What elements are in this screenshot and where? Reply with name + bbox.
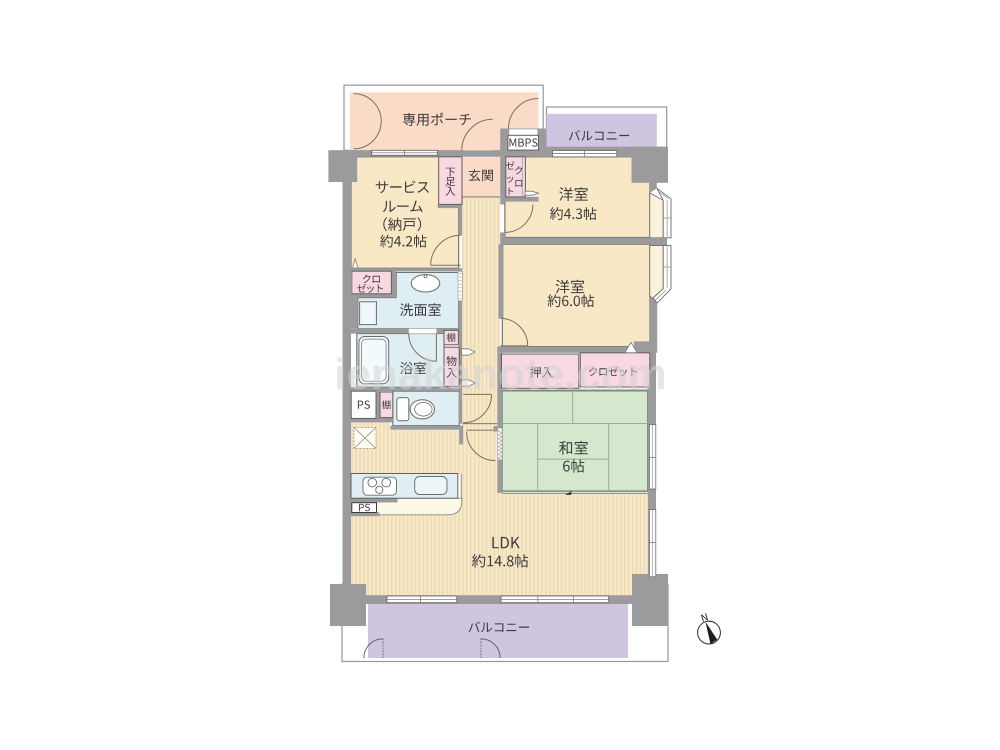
svg-text:ienakanote.com: ienakanote.com — [334, 350, 667, 399]
